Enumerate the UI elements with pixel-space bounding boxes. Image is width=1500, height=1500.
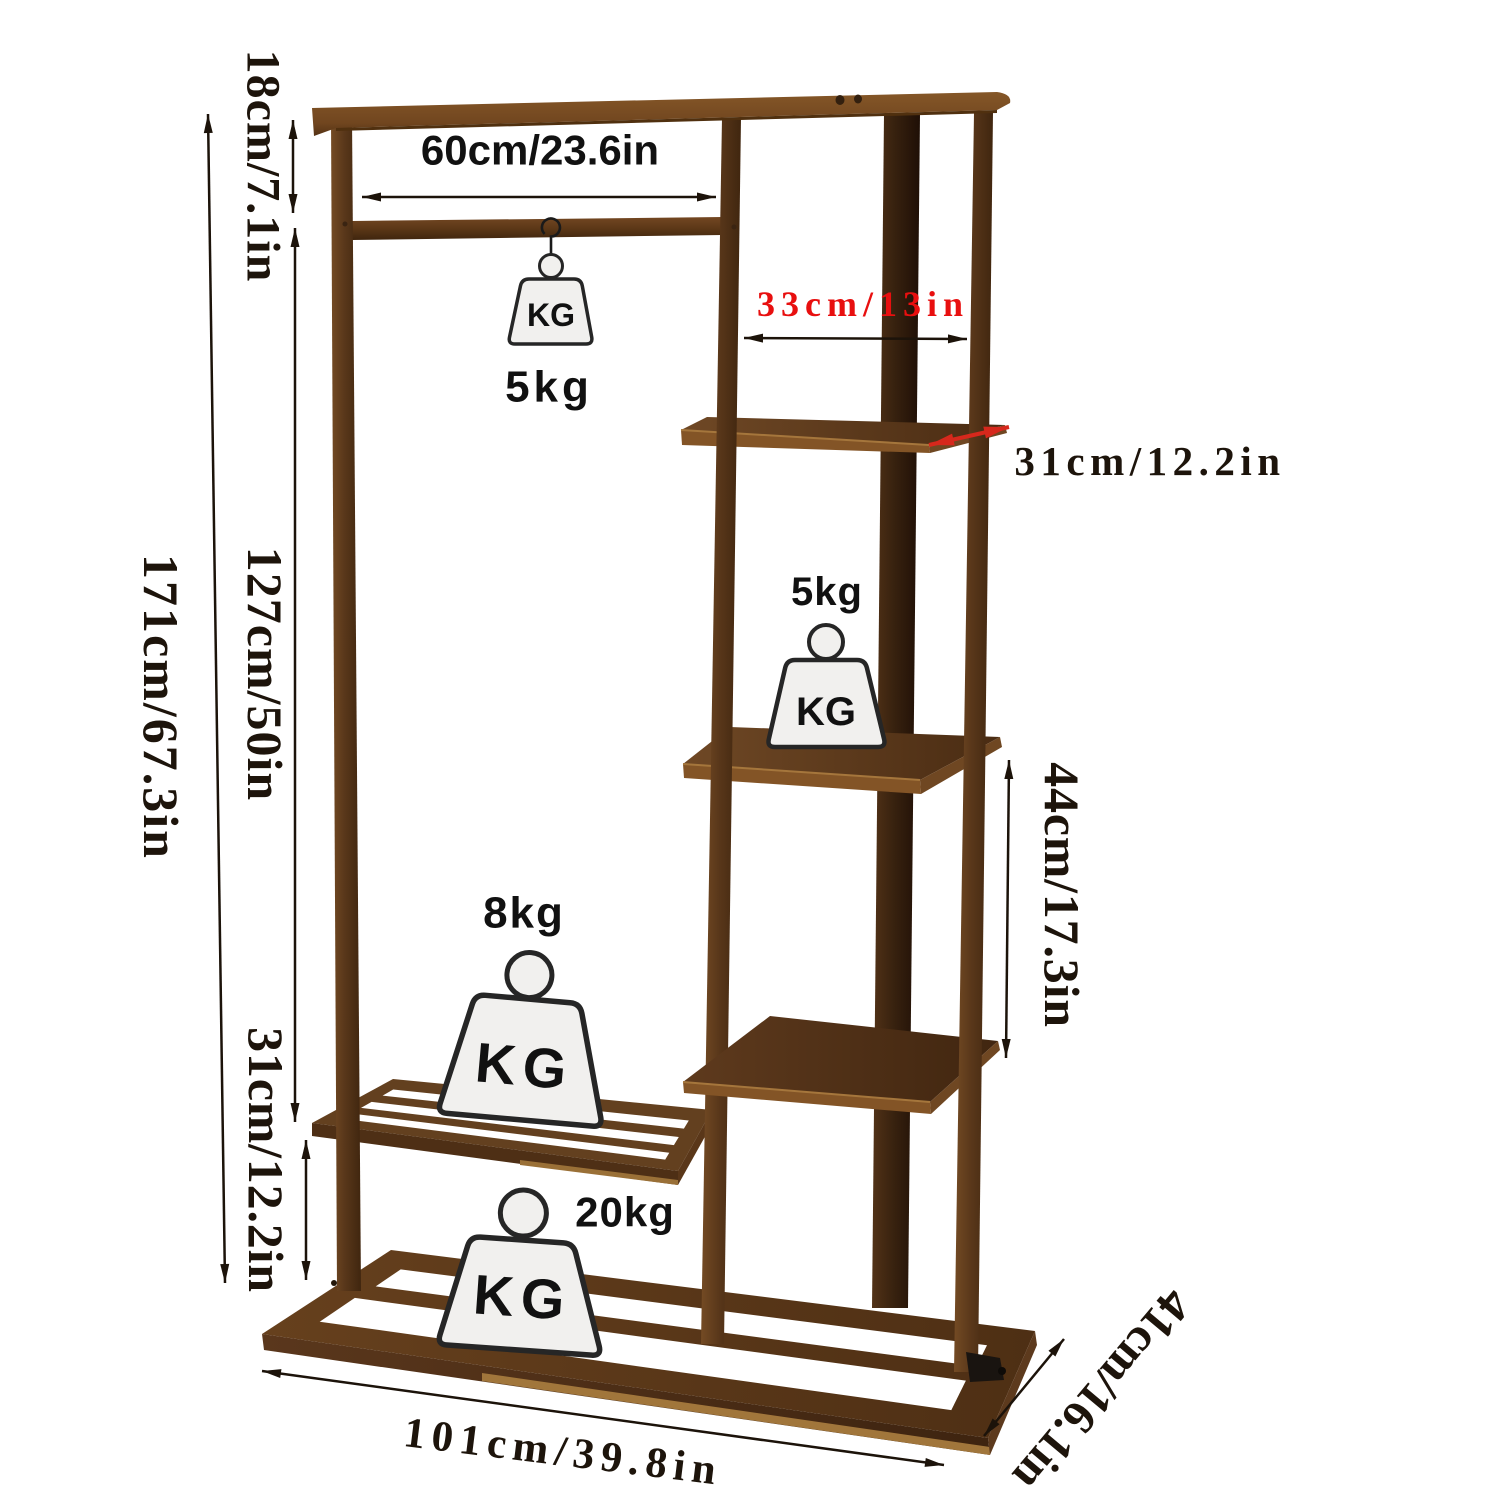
svg-text:31cm/12.2in: 31cm/12.2in xyxy=(238,1027,294,1293)
svg-text:127cm/50in: 127cm/50in xyxy=(237,547,293,801)
svg-text:5kg: 5kg xyxy=(505,363,593,412)
svg-text:8kg: 8kg xyxy=(483,889,565,938)
svg-text:5kg: 5kg xyxy=(791,570,863,614)
svg-text:18cm/7.1in: 18cm/7.1in xyxy=(237,50,290,283)
svg-text:44cm/17.3in: 44cm/17.3in xyxy=(1034,762,1090,1028)
svg-text:KG: KG xyxy=(471,1262,573,1332)
svg-text:KG: KG xyxy=(527,297,575,333)
svg-text:33cm/13in: 33cm/13in xyxy=(757,284,969,324)
svg-text:171cm/67.3in: 171cm/67.3in xyxy=(133,554,189,860)
svg-text:KG: KG xyxy=(473,1030,576,1101)
svg-text:31cm/12.2in: 31cm/12.2in xyxy=(1014,438,1285,484)
svg-text:KG: KG xyxy=(796,690,856,734)
svg-text:20kg: 20kg xyxy=(575,1189,675,1236)
svg-text:60cm/23.6in: 60cm/23.6in xyxy=(421,127,659,174)
